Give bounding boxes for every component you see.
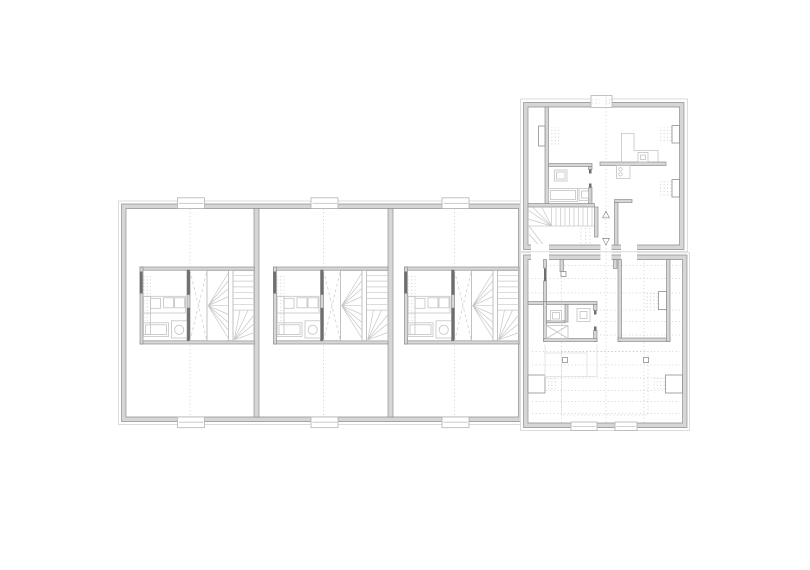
chimney-block bbox=[591, 96, 612, 108]
flue-hatch bbox=[545, 377, 557, 392]
door-frame-south-1 bbox=[571, 422, 597, 431]
flue-hatch bbox=[654, 377, 666, 392]
party-wall-2 bbox=[388, 209, 393, 418]
floor-plan-canvas: △ ▽ bbox=[0, 0, 810, 570]
door-leaf bbox=[594, 311, 597, 315]
column bbox=[563, 358, 568, 363]
row-building bbox=[116, 198, 526, 428]
flue-hatch bbox=[660, 127, 673, 142]
door-post bbox=[561, 272, 566, 277]
door-leaf bbox=[589, 184, 592, 188]
wall-pier bbox=[666, 375, 683, 393]
door-leaf bbox=[594, 327, 597, 331]
flue-hatch bbox=[660, 181, 673, 196]
flue-hatch bbox=[549, 127, 561, 145]
column bbox=[644, 358, 649, 363]
wall-pier bbox=[528, 375, 545, 393]
north-house bbox=[520, 96, 690, 253]
wall-pier bbox=[672, 180, 680, 198]
stairs-up-icon: △ bbox=[602, 209, 610, 220]
flue-hatch bbox=[647, 293, 659, 308]
door-frame-south-2 bbox=[615, 422, 637, 431]
floor-plan-page: △ ▽ bbox=[0, 0, 810, 570]
stairs-down-icon: ▽ bbox=[602, 236, 610, 247]
wall-pier bbox=[672, 126, 680, 144]
wall-pier bbox=[539, 126, 546, 146]
door-leaf bbox=[589, 170, 592, 174]
door-leaf bbox=[544, 269, 547, 282]
wall-pier bbox=[659, 292, 667, 310]
